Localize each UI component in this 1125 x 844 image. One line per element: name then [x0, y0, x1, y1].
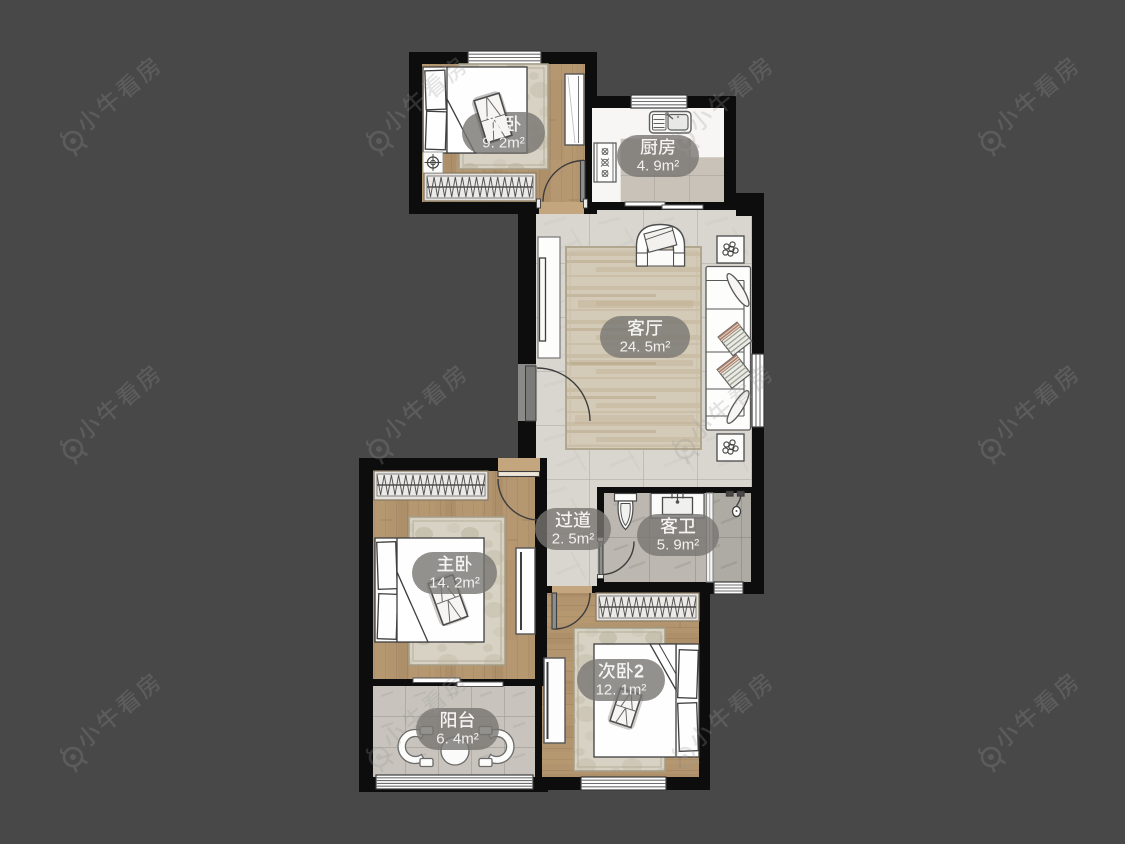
- svg-text:14. 2m²: 14. 2m²: [429, 574, 480, 591]
- svg-text:5. 9m²: 5. 9m²: [657, 536, 700, 553]
- svg-text:12. 1m²: 12. 1m²: [596, 681, 647, 698]
- svg-text:6. 4m²: 6. 4m²: [436, 730, 479, 747]
- svg-text:2. 5m²: 2. 5m²: [552, 530, 595, 547]
- svg-text:9. 2m²: 9. 2m²: [482, 134, 525, 151]
- svg-text:2: 2: [634, 661, 644, 681]
- svg-text:4. 9m²: 4. 9m²: [637, 157, 680, 174]
- svg-text:24. 5m²: 24. 5m²: [620, 338, 671, 355]
